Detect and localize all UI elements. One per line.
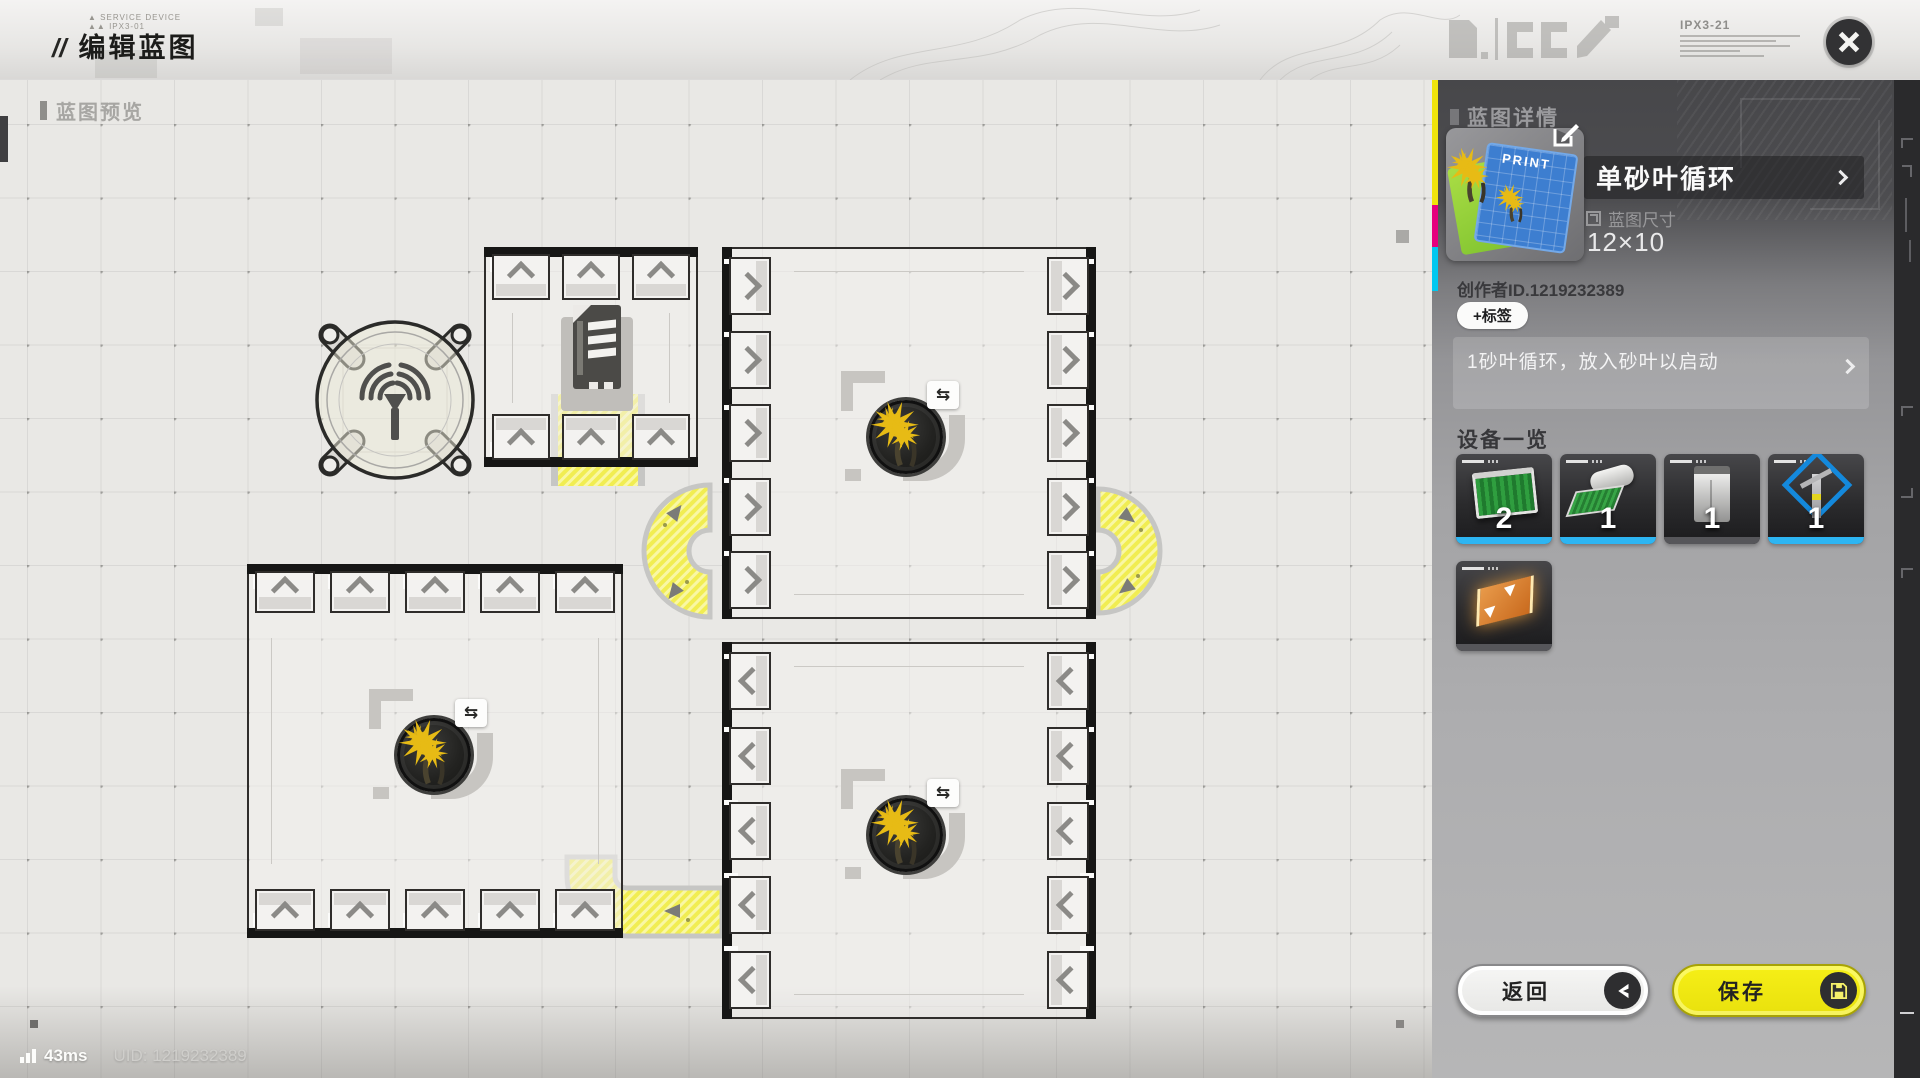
chamfer-line (794, 271, 1024, 272)
title-prefix: // (52, 33, 66, 64)
io-slot-up (405, 571, 465, 613)
blueprint-detail-panel: 蓝图详情 PRINT 单砂叶循环 蓝图尺寸 12×10 创作者ID.121923… (1432, 80, 1920, 1078)
equip-count: 2 (1456, 502, 1552, 536)
back-arrow-icon (1604, 972, 1641, 1009)
close-button[interactable] (1826, 19, 1872, 65)
save-floppy-icon (1820, 972, 1857, 1009)
io-slot-right (729, 404, 771, 462)
save-button[interactable]: 保存 (1672, 964, 1866, 1017)
deco-square (300, 38, 392, 74)
io-slot-up (330, 571, 390, 613)
rail-dash (1900, 1012, 1914, 1014)
equip-tile-planter-unit[interactable]: 2 (1456, 454, 1552, 544)
io-slot-right (729, 257, 771, 315)
io-slot-left (729, 876, 771, 934)
io-slot-up (555, 571, 615, 613)
io-slot-up (330, 889, 390, 931)
equip-tile-seed-collector[interactable]: 1 (1560, 454, 1656, 544)
chamfer-line (598, 638, 599, 864)
io-slot-right (1047, 551, 1089, 609)
conveyor-uturn-right[interactable] (1098, 489, 1160, 613)
rail-glyph (1901, 488, 1913, 498)
chamfer-line (794, 994, 1024, 995)
size-value: 12×10 (1587, 227, 1665, 258)
blueprint-grid[interactable]: 蓝图预览 (0, 80, 1432, 1078)
file-icon (1449, 20, 1477, 58)
io-slot-up (480, 571, 540, 613)
io-slot-up (555, 889, 615, 931)
io-slot-up (480, 889, 540, 931)
io-slot-left (1047, 652, 1089, 710)
chamfer-line (794, 594, 1024, 595)
swap-badge[interactable]: ⇆ (927, 381, 959, 409)
rail-text-deco (1909, 240, 1911, 262)
rail-glyph (1902, 165, 1912, 177)
machine-body (573, 305, 621, 389)
rail-glyph (1901, 406, 1913, 416)
io-slot-left (1047, 802, 1089, 860)
equip-count: 1 (1664, 502, 1760, 536)
deco-text-line (1680, 40, 1776, 42)
io-slot-right (729, 551, 771, 609)
tile-accent-bar (1768, 537, 1864, 544)
chevron-right-icon (1840, 359, 1856, 375)
page-title: // 编辑蓝图 (52, 26, 198, 65)
edge-strip-magenta (1432, 205, 1438, 247)
equipment-section-label: 设备一览 (1457, 424, 1549, 454)
rail-glyph (1901, 568, 1913, 578)
back-button[interactable]: 返回 (1456, 964, 1650, 1017)
io-slot-up (632, 414, 690, 460)
tile-mini-label (1774, 460, 1796, 463)
sandleaf-machine[interactable]: ⇆ (831, 359, 981, 509)
edit-icon[interactable] (1550, 120, 1580, 150)
description-text: 1砂叶循环，放入砂叶以启动 (1467, 347, 1719, 374)
tile-accent-bar (1456, 644, 1552, 651)
io-slot-left (729, 802, 771, 860)
conveyor-uturn-left[interactable] (644, 485, 710, 617)
equip-count: 1 (1768, 502, 1864, 536)
chamfer-line (669, 313, 670, 403)
io-slot-left (1047, 727, 1089, 785)
tile-mini-label (1566, 460, 1588, 463)
io-slot-right (729, 478, 771, 536)
io-slot-up (562, 254, 620, 300)
tile-mini-label (1462, 567, 1484, 570)
io-slot-right (1047, 404, 1089, 462)
chamfer-line (271, 638, 272, 864)
io-slot-right (729, 331, 771, 389)
deco-text-line (1680, 50, 1740, 52)
tile-accent-bar (1456, 537, 1552, 544)
sandleaf-machine[interactable]: ⇆ (831, 757, 981, 907)
equip-count: 1 (1560, 502, 1656, 536)
top-bar: ▲ SERVICE DEVICE ▲▲ IPX3-01 // 编辑蓝图 IPX3… (0, 0, 1920, 80)
swap-badge[interactable]: ⇆ (927, 779, 959, 807)
antenna-structure[interactable] (316, 321, 474, 479)
io-slot-up (492, 254, 550, 300)
title-text: 编辑蓝图 (78, 26, 198, 65)
tile-mini-label (1462, 460, 1484, 463)
right-edge-rail (1894, 80, 1920, 1078)
equip-tile-power-node[interactable]: 1 (1768, 454, 1864, 544)
io-slot-up (255, 889, 315, 931)
swap-badge[interactable]: ⇆ (455, 699, 487, 727)
io-slot-up (632, 254, 690, 300)
toolbar-deco-icons (1447, 14, 1677, 66)
storage-building[interactable] (484, 247, 698, 467)
equip-tile-storage-cabinet[interactable]: 1 (1664, 454, 1760, 544)
io-slot-up (405, 889, 465, 931)
io-slot-up (492, 414, 550, 460)
equip-tile-conveyor-belt[interactable] (1456, 561, 1552, 651)
blueprint-name-button[interactable]: 单砂叶循环 (1584, 156, 1864, 199)
deco-square (255, 8, 283, 26)
sandleaf-flower-icon (1488, 176, 1542, 230)
io-slot-up (562, 414, 620, 460)
deco-text-line (1680, 35, 1800, 37)
io-slot-right (1047, 331, 1089, 389)
blueprint-name: 单砂叶循环 (1596, 159, 1736, 196)
add-tag-button[interactable]: +标签 (1457, 302, 1528, 329)
topo-contour-deco (840, 0, 1460, 80)
creator-id: 创作者ID.1219232389 (1457, 276, 1624, 301)
rail-text-deco (1905, 198, 1907, 232)
rail-glyph (1901, 138, 1913, 148)
io-slot-left (1047, 876, 1089, 934)
conveyor-layer (0, 80, 1432, 1078)
chamfer-line (794, 666, 1024, 667)
chamfer-line (512, 313, 513, 403)
dimensions-icon (1586, 211, 1601, 226)
conveyor-belt-icon (1476, 575, 1534, 626)
sandleaf-machine[interactable]: ⇆ (359, 677, 509, 827)
description-box[interactable]: 1砂叶循环，放入砂叶以启动 (1453, 337, 1869, 409)
tile-accent-bar (1560, 537, 1656, 544)
equipment-grid: 2 1 1 1 (1456, 454, 1868, 651)
tile-mini-label (1670, 460, 1692, 463)
device-code: IPX3-21 (1680, 18, 1800, 32)
chevron-right-icon (1833, 170, 1849, 186)
bracket-icon (1507, 22, 1533, 58)
io-slot-left (729, 951, 771, 1009)
io-slot-right (1047, 478, 1089, 536)
edge-strip-yellow (1432, 80, 1438, 205)
io-slot-right (1047, 257, 1089, 315)
deco-text-line (1680, 45, 1790, 47)
io-slot-up (255, 571, 315, 613)
io-slot-left (729, 727, 771, 785)
deco-text-line (1680, 55, 1764, 57)
edge-strip-cyan (1432, 247, 1438, 291)
bracket-icon (1541, 22, 1567, 58)
io-slot-left (1047, 951, 1089, 1009)
io-slot-left (729, 652, 771, 710)
tile-accent-bar (1664, 537, 1760, 544)
device-code-block: IPX3-21 (1680, 18, 1800, 57)
label-bullet (1450, 109, 1459, 125)
processor-machine-icon[interactable] (545, 301, 637, 413)
